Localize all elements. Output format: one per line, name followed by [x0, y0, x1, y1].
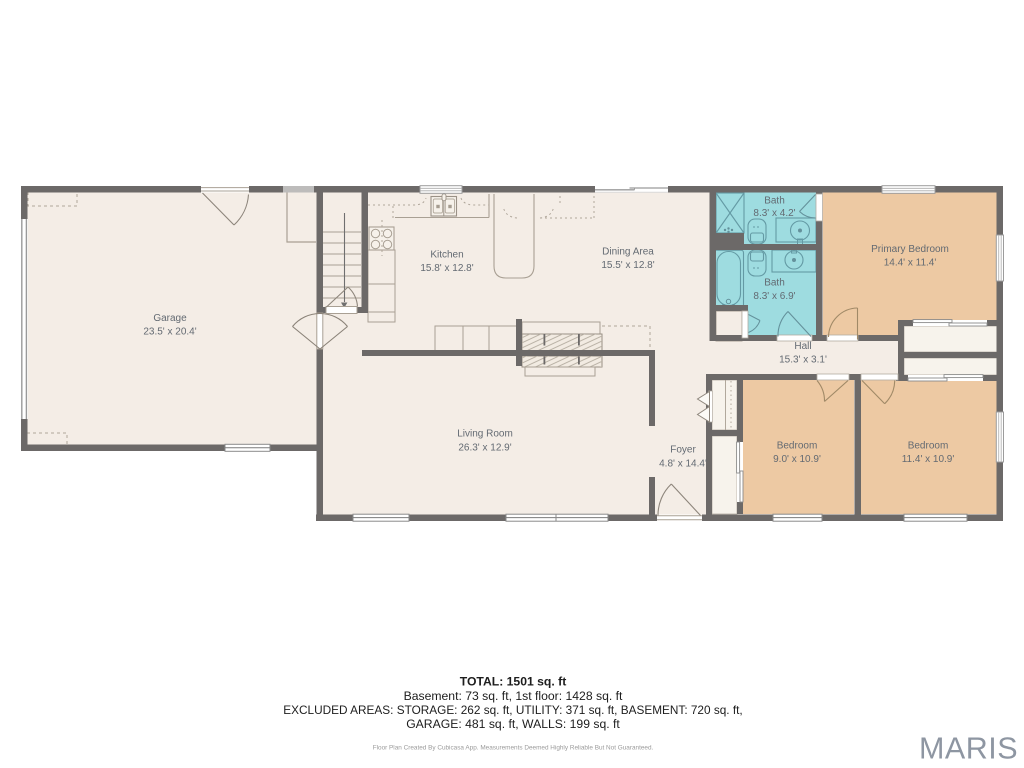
svg-text:Garage: Garage	[153, 313, 187, 324]
svg-text:Bedroom: Bedroom	[777, 441, 818, 452]
svg-text:15.5' x 12.8': 15.5' x 12.8'	[601, 260, 654, 271]
svg-text:8.3' x 6.9': 8.3' x 6.9'	[753, 291, 795, 302]
svg-text:Primary Bedroom: Primary Bedroom	[871, 244, 949, 255]
svg-text:MARIS: MARIS	[919, 732, 1018, 766]
svg-text:Basement: 73 sq. ft, 1st floor: Basement: 73 sq. ft, 1st floor: 1428 sq.…	[404, 689, 623, 703]
svg-text:TOTAL: 1501 sq. ft: TOTAL: 1501 sq. ft	[460, 675, 567, 689]
svg-text:GARAGE: 481 sq. ft, WALLS: 199: GARAGE: 481 sq. ft, WALLS: 199 sq. ft	[406, 717, 620, 731]
svg-text:26.3' x 12.9': 26.3' x 12.9'	[458, 443, 511, 454]
svg-text:Floor Plan Created By Cubicasa: Floor Plan Created By Cubicasa App. Meas…	[373, 744, 654, 751]
svg-text:Bedroom: Bedroom	[908, 441, 949, 452]
svg-text:EXCLUDED AREAS: STORAGE: 262 s: EXCLUDED AREAS: STORAGE: 262 sq. ft, UTI…	[283, 703, 742, 717]
svg-text:14.4' x 11.4': 14.4' x 11.4'	[884, 258, 937, 269]
svg-text:Living Room: Living Room	[457, 429, 513, 440]
svg-text:4.8' x 14.4': 4.8' x 14.4'	[659, 459, 707, 470]
svg-text:Bath: Bath	[764, 196, 785, 207]
svg-text:Kitchen: Kitchen	[430, 250, 463, 261]
svg-text:15.8' x 12.8': 15.8' x 12.8'	[420, 263, 473, 274]
svg-text:Hall: Hall	[794, 341, 811, 352]
svg-text:Dining Area: Dining Area	[602, 247, 654, 258]
svg-text:9.0' x 10.9': 9.0' x 10.9'	[773, 454, 821, 465]
svg-text:Foyer: Foyer	[670, 445, 696, 456]
svg-text:23.5' x 20.4': 23.5' x 20.4'	[143, 327, 196, 338]
svg-text:15.3' x 3.1': 15.3' x 3.1'	[779, 355, 827, 366]
svg-text:11.4' x 10.9': 11.4' x 10.9'	[902, 454, 955, 465]
svg-text:Bath: Bath	[764, 278, 785, 289]
svg-text:8.3' x 4.2': 8.3' x 4.2'	[753, 208, 795, 219]
